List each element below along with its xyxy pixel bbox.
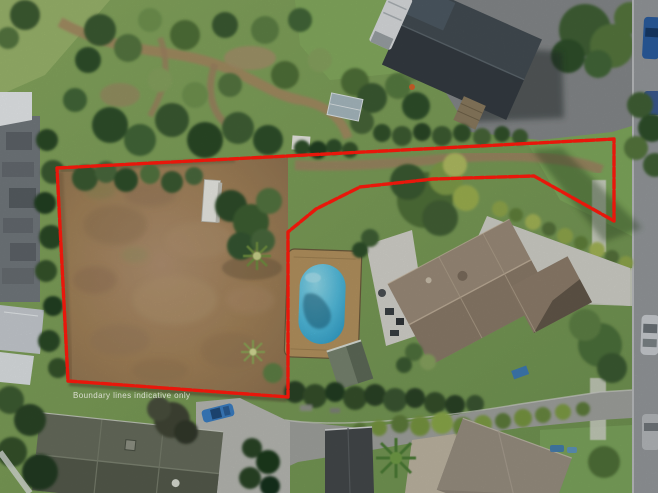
photo-grain — [0, 0, 658, 493]
boundary-disclaimer-text: Boundary lines indicative only — [73, 391, 190, 400]
aerial-photo-stage: Boundary lines indicative only — [0, 0, 658, 493]
aerial-photo: Boundary lines indicative only — [0, 0, 658, 493]
